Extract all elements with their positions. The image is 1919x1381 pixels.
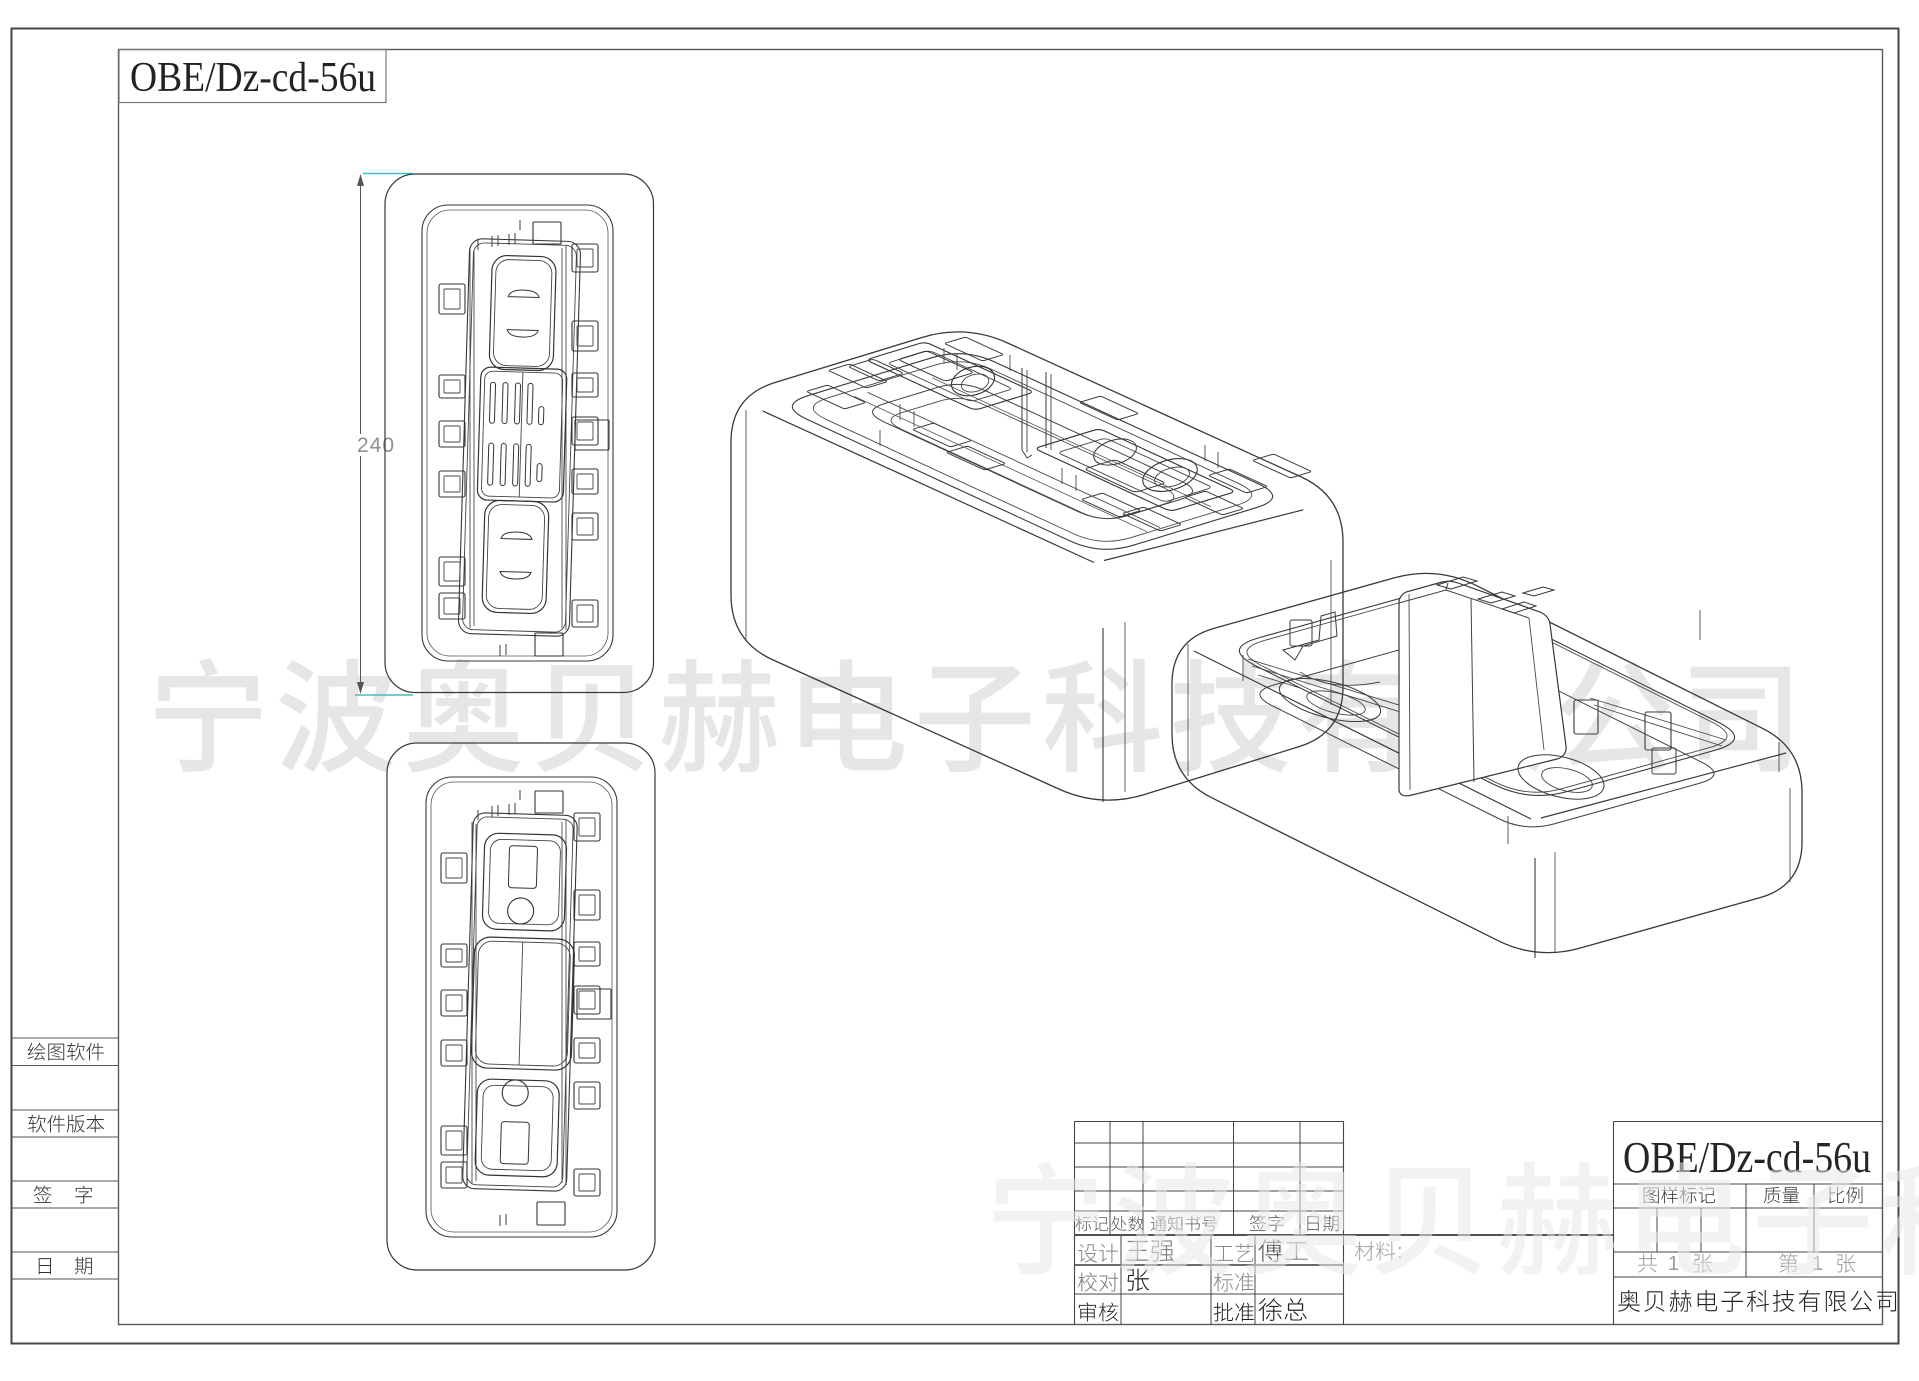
svg-text:OBE/Dz-cd-56u: OBE/Dz-cd-56u [130,55,376,101]
svg-text:1: 1 [1668,1253,1679,1275]
svg-text:240: 240 [357,434,395,457]
